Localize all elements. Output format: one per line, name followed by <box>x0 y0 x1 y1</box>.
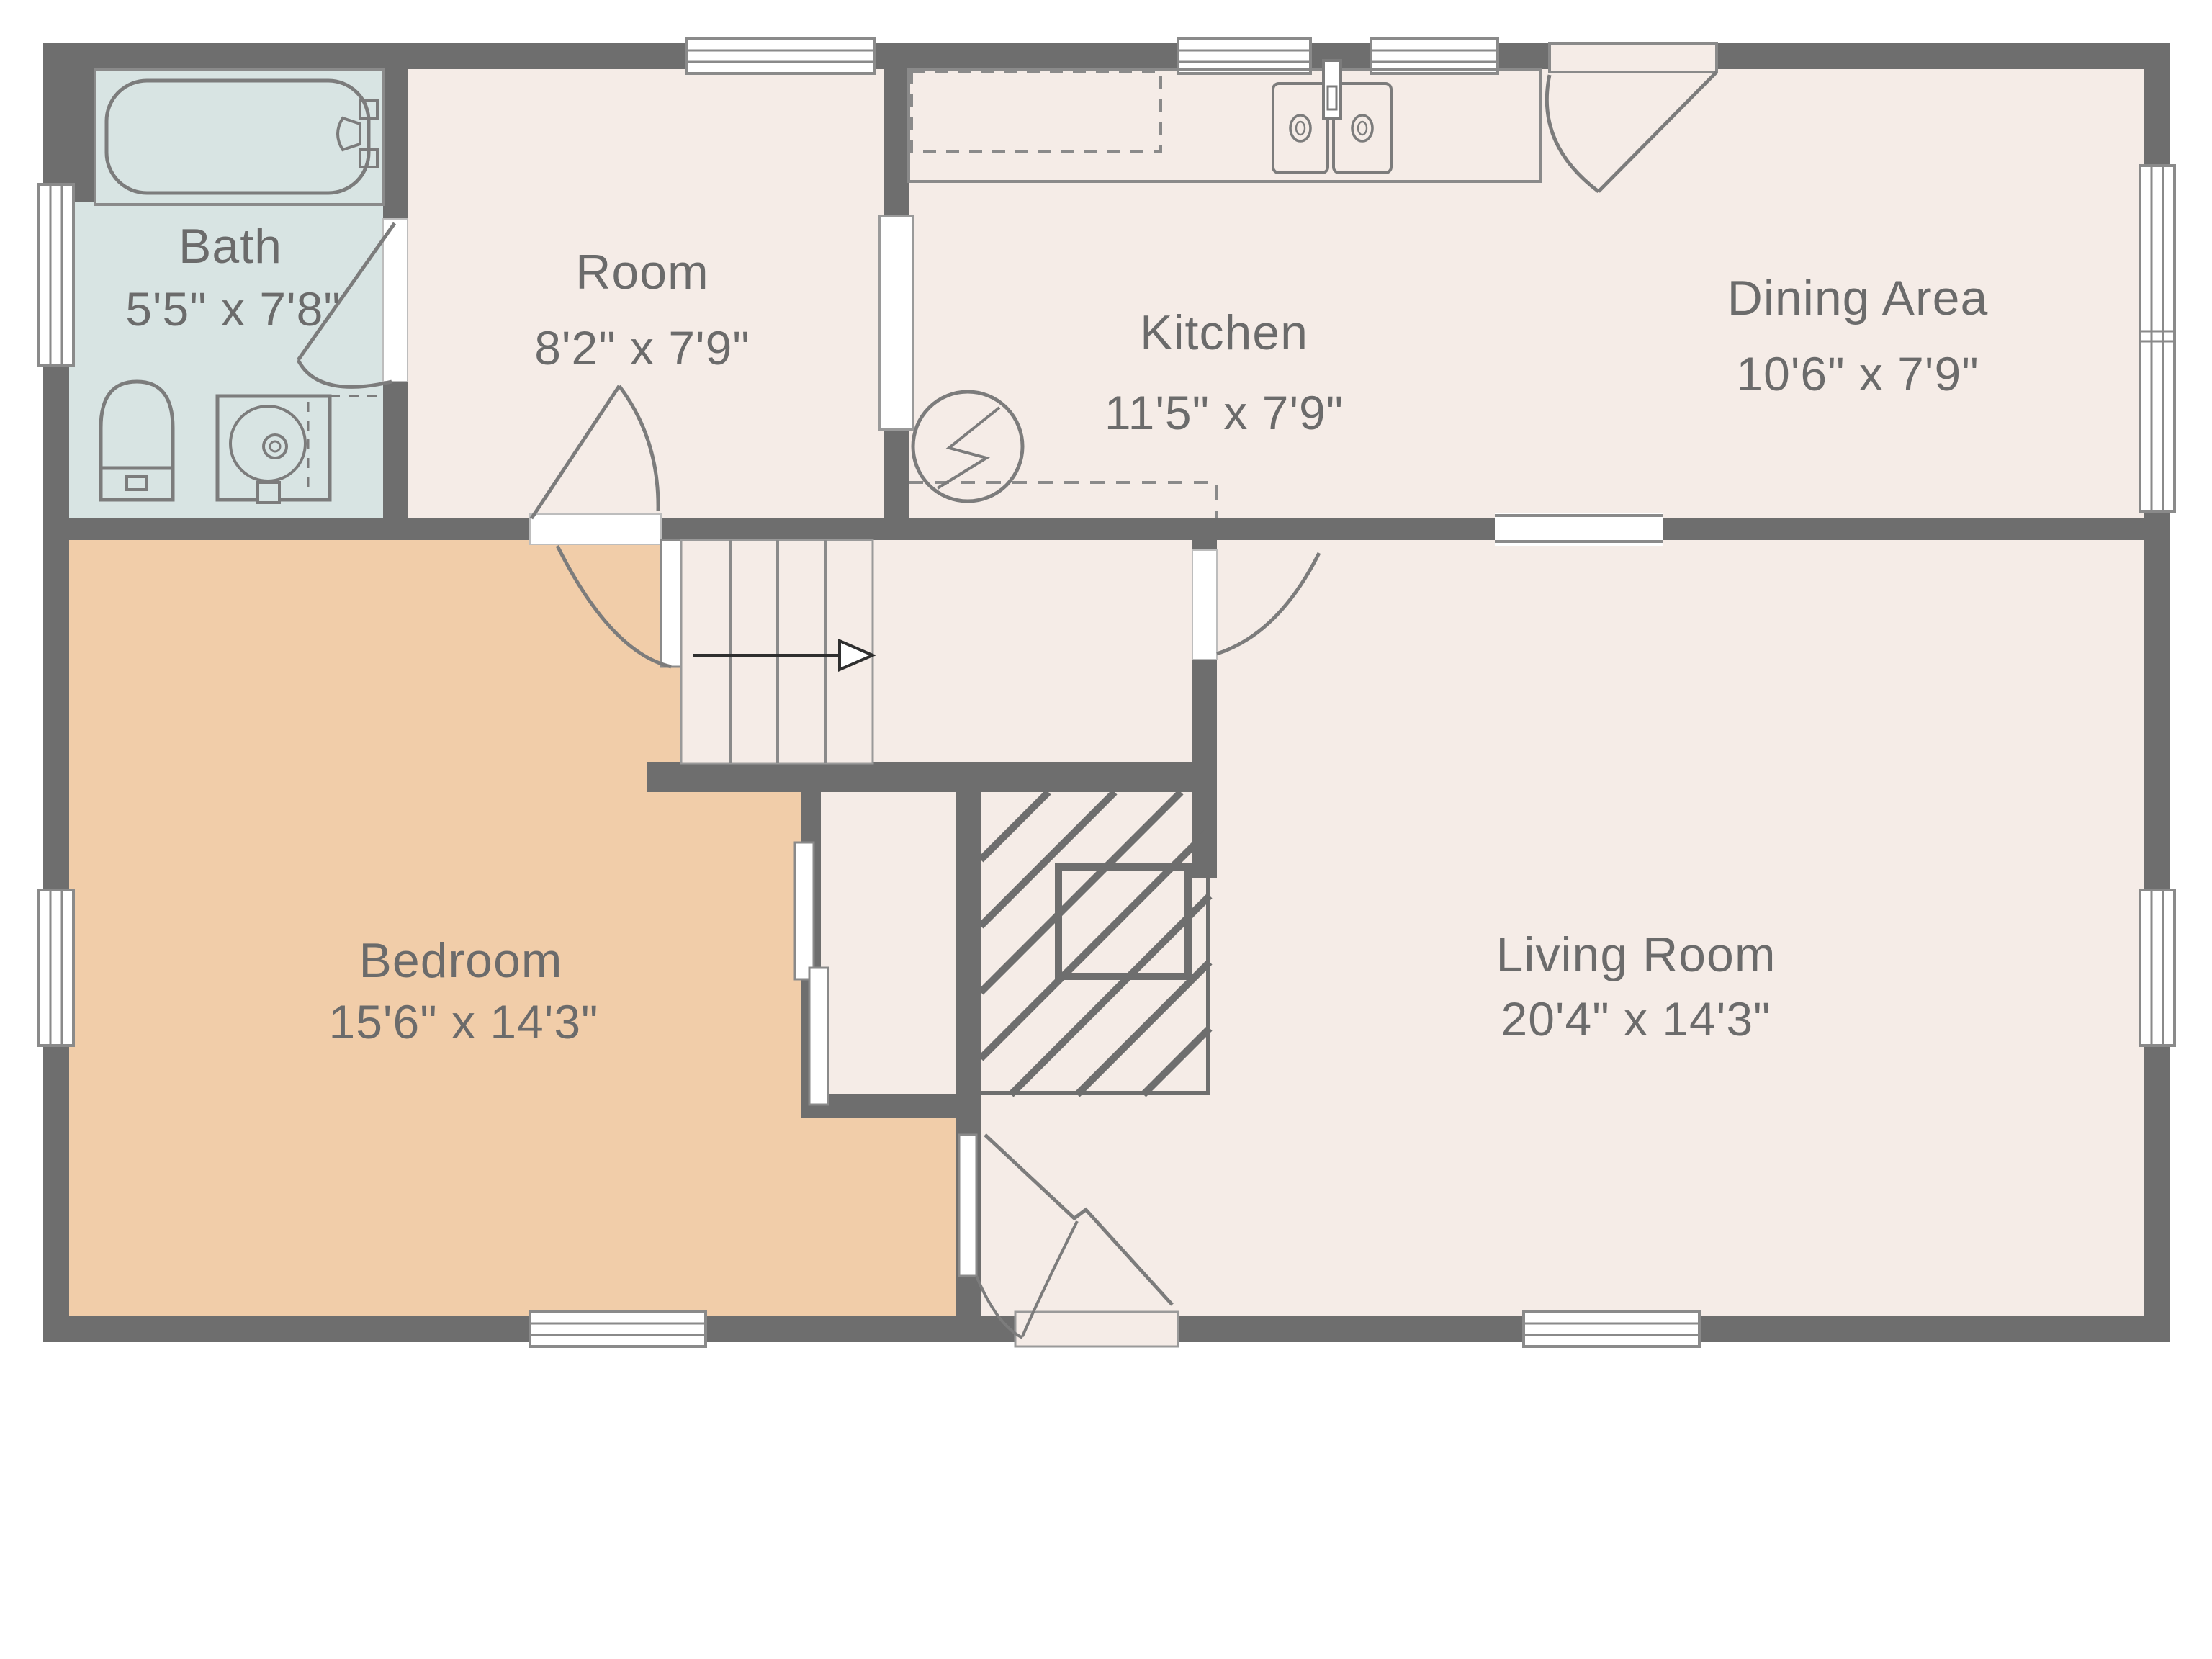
wall-main-3 <box>1663 518 2144 540</box>
dining-living-opening <box>1495 513 1663 546</box>
window-left-bath <box>39 184 73 366</box>
wall-bath-room-lower <box>383 382 408 518</box>
pass-through-window <box>880 216 913 429</box>
wall-main-2 <box>661 518 1495 540</box>
wall-closet-right <box>956 762 981 1118</box>
wall-under-stairs <box>647 762 1217 792</box>
window-left-bedroom <box>39 890 73 1046</box>
staircase <box>681 540 873 763</box>
wall-main-1 <box>69 518 530 540</box>
floors <box>69 69 2144 1316</box>
window-right-dining <box>2140 166 2175 511</box>
window-bottom-bedroom <box>530 1312 706 1346</box>
sink-faucet <box>258 482 279 503</box>
floor-plan-drawing <box>0 0 2212 1659</box>
window-top-room <box>687 39 874 73</box>
floor-plan: Bath 5'5" x 7'8" Room 8'2" x 7'9" Kitche… <box>0 0 2212 1659</box>
window-right-living <box>2140 890 2175 1046</box>
window-bottom-living <box>1524 1312 1699 1346</box>
wall-tub-stub <box>69 69 95 202</box>
wall-top <box>43 43 2170 69</box>
wall-bath-room-upper <box>383 69 408 219</box>
bath-floor <box>69 69 383 518</box>
floor-plan-page: Bath 5'5" x 7'8" Room 8'2" x 7'9" Kitche… <box>0 0 2212 1659</box>
